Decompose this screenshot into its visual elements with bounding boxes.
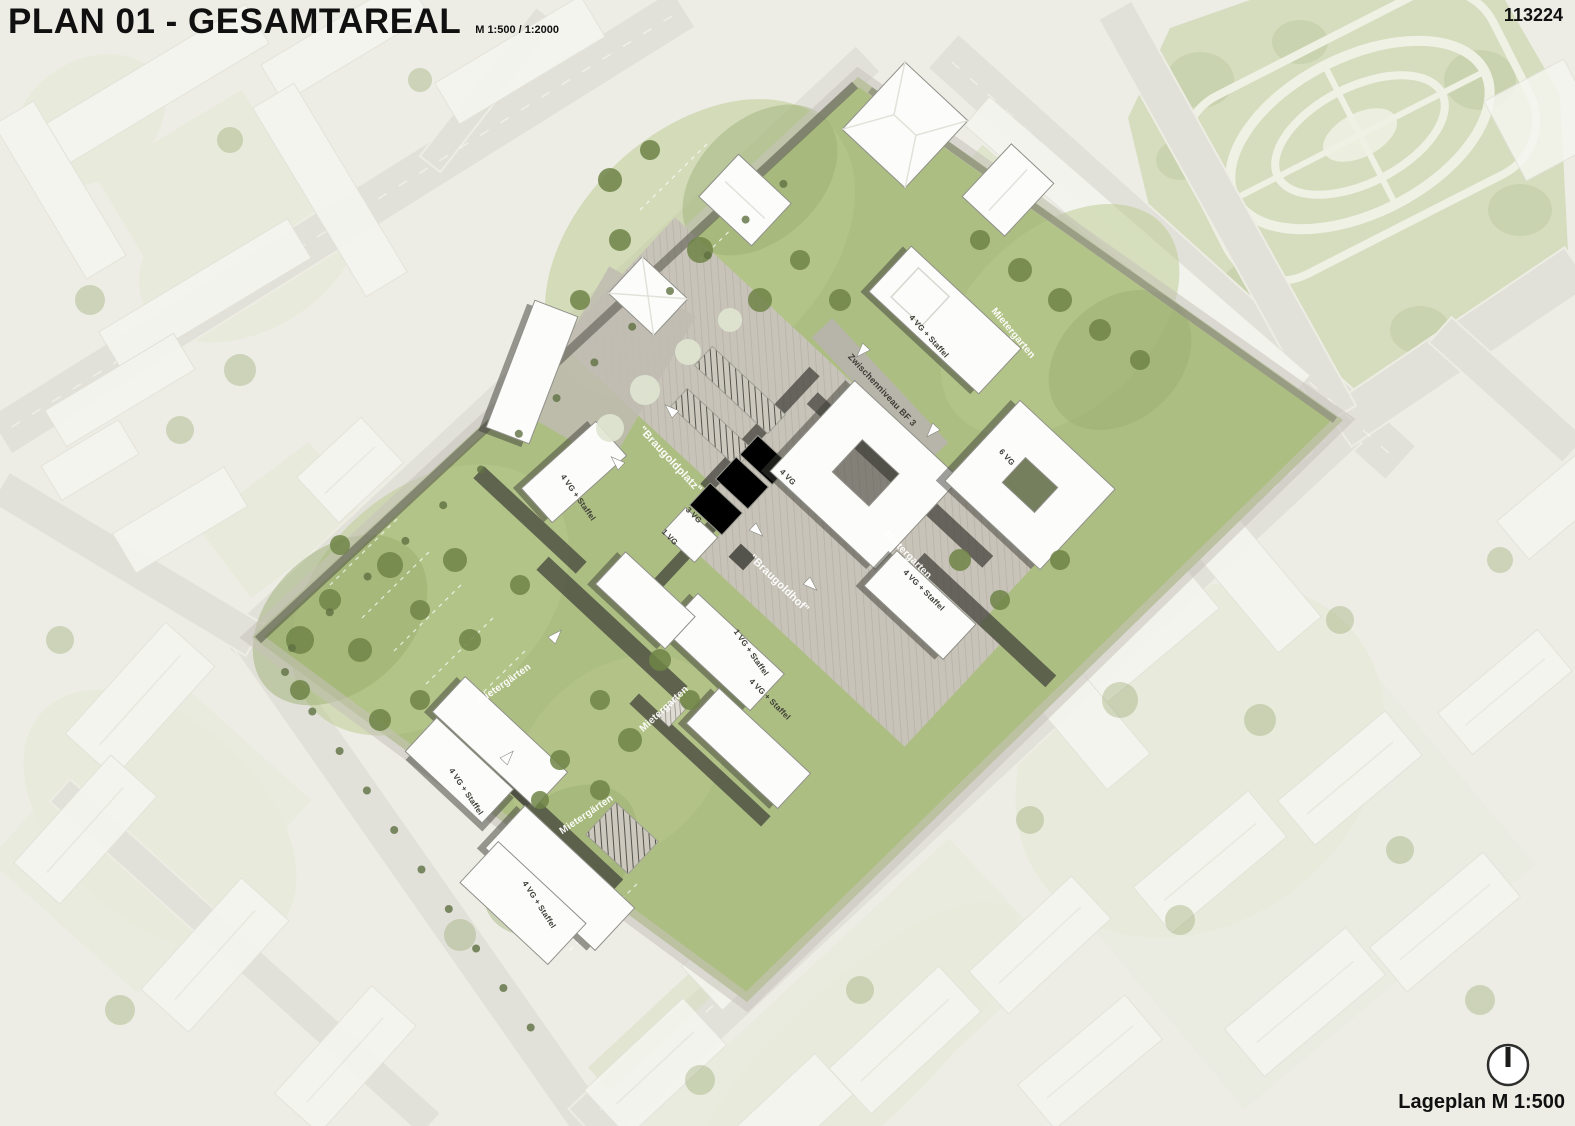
tree-icon	[742, 216, 750, 224]
tree-icon	[790, 250, 810, 270]
tree-icon	[418, 866, 426, 874]
site-plan-page: "Braugoldplatz""Braugoldhof"Zwischennive…	[0, 0, 1575, 1126]
tree-icon	[590, 690, 610, 710]
tree-icon	[410, 690, 430, 710]
tree-icon	[990, 590, 1010, 610]
tree-icon	[685, 1065, 715, 1095]
tree-icon	[166, 416, 194, 444]
tree-icon	[390, 826, 398, 834]
tree-icon	[598, 168, 622, 192]
plan-footer: Lageplan M 1:500	[1398, 1042, 1565, 1114]
tree-icon	[326, 608, 334, 616]
tree-icon	[628, 323, 636, 331]
tree-icon	[630, 375, 660, 405]
tree-icon	[443, 548, 467, 572]
tree-icon	[1102, 682, 1138, 718]
tree-icon	[472, 945, 480, 953]
tree-icon	[348, 638, 372, 662]
site-plan-canvas: "Braugoldplatz""Braugoldhof"Zwischennive…	[0, 0, 1575, 1126]
tree-icon	[718, 308, 742, 332]
tree-icon	[1008, 258, 1032, 282]
tree-icon	[217, 127, 243, 153]
tree-icon	[510, 575, 530, 595]
tree-icon	[704, 251, 712, 259]
tree-icon	[105, 995, 135, 1025]
tree-icon	[1165, 905, 1195, 935]
tree-icon	[675, 339, 701, 365]
tree-icon	[570, 290, 590, 310]
tree-icon	[1465, 985, 1495, 1015]
tree-icon	[330, 535, 350, 555]
tree-icon	[1487, 547, 1513, 573]
tree-icon	[1244, 704, 1276, 736]
plan-header: PLAN 01 - GESAMTAREAL M 1:500 / 1:2000	[8, 2, 559, 42]
tree-icon	[779, 180, 787, 188]
tree-icon	[609, 229, 631, 251]
tree-icon	[290, 680, 310, 700]
tree-icon	[363, 787, 371, 795]
tree-icon	[75, 285, 105, 315]
tree-icon	[477, 466, 485, 474]
tree-icon	[410, 600, 430, 620]
tree-icon	[308, 708, 316, 716]
tree-icon	[527, 1024, 535, 1032]
tree-icon	[364, 573, 372, 581]
tree-icon	[531, 791, 549, 809]
tree-icon	[649, 649, 671, 671]
tree-icon	[1050, 550, 1070, 570]
tree-icon	[1048, 288, 1072, 312]
tree-icon	[281, 668, 289, 676]
tree-icon	[288, 644, 296, 652]
tree-icon	[748, 288, 772, 312]
tree-icon	[666, 287, 674, 295]
scale-note: M 1:500 / 1:2000	[475, 24, 559, 36]
tree-icon	[319, 589, 341, 611]
tree-icon	[499, 984, 507, 992]
tree-icon	[408, 68, 432, 92]
tree-icon	[46, 626, 74, 654]
tree-icon	[970, 230, 990, 250]
tree-icon	[369, 709, 391, 731]
tree-icon	[590, 358, 598, 366]
tree-icon	[515, 430, 523, 438]
tree-icon	[829, 289, 851, 311]
tree-icon	[1130, 350, 1150, 370]
tree-icon	[445, 905, 453, 913]
page-title: PLAN 01 - GESAMTAREAL	[8, 2, 461, 42]
tree-icon	[596, 414, 624, 442]
tree-icon	[846, 976, 874, 1004]
tree-icon	[377, 552, 403, 578]
tree-icon	[444, 919, 476, 951]
north-arrow-icon	[1485, 1042, 1531, 1088]
tree-icon	[1089, 319, 1111, 341]
tree-icon	[1326, 606, 1354, 634]
tree-icon	[224, 354, 256, 386]
tree-icon	[949, 549, 971, 571]
sheet-number: 113224	[1504, 5, 1563, 26]
tree-icon	[640, 140, 660, 160]
tree-icon	[1016, 806, 1044, 834]
tree-icon	[439, 501, 447, 509]
tree-icon	[336, 747, 344, 755]
tree-icon	[401, 537, 409, 545]
tree-icon	[459, 629, 481, 651]
tree-icon	[687, 237, 713, 263]
tree-icon	[553, 394, 561, 402]
tree-icon	[618, 728, 642, 752]
tree-icon	[550, 750, 570, 770]
map-scale-label: Lageplan M 1:500	[1398, 1091, 1565, 1114]
tree-icon	[1386, 836, 1414, 864]
